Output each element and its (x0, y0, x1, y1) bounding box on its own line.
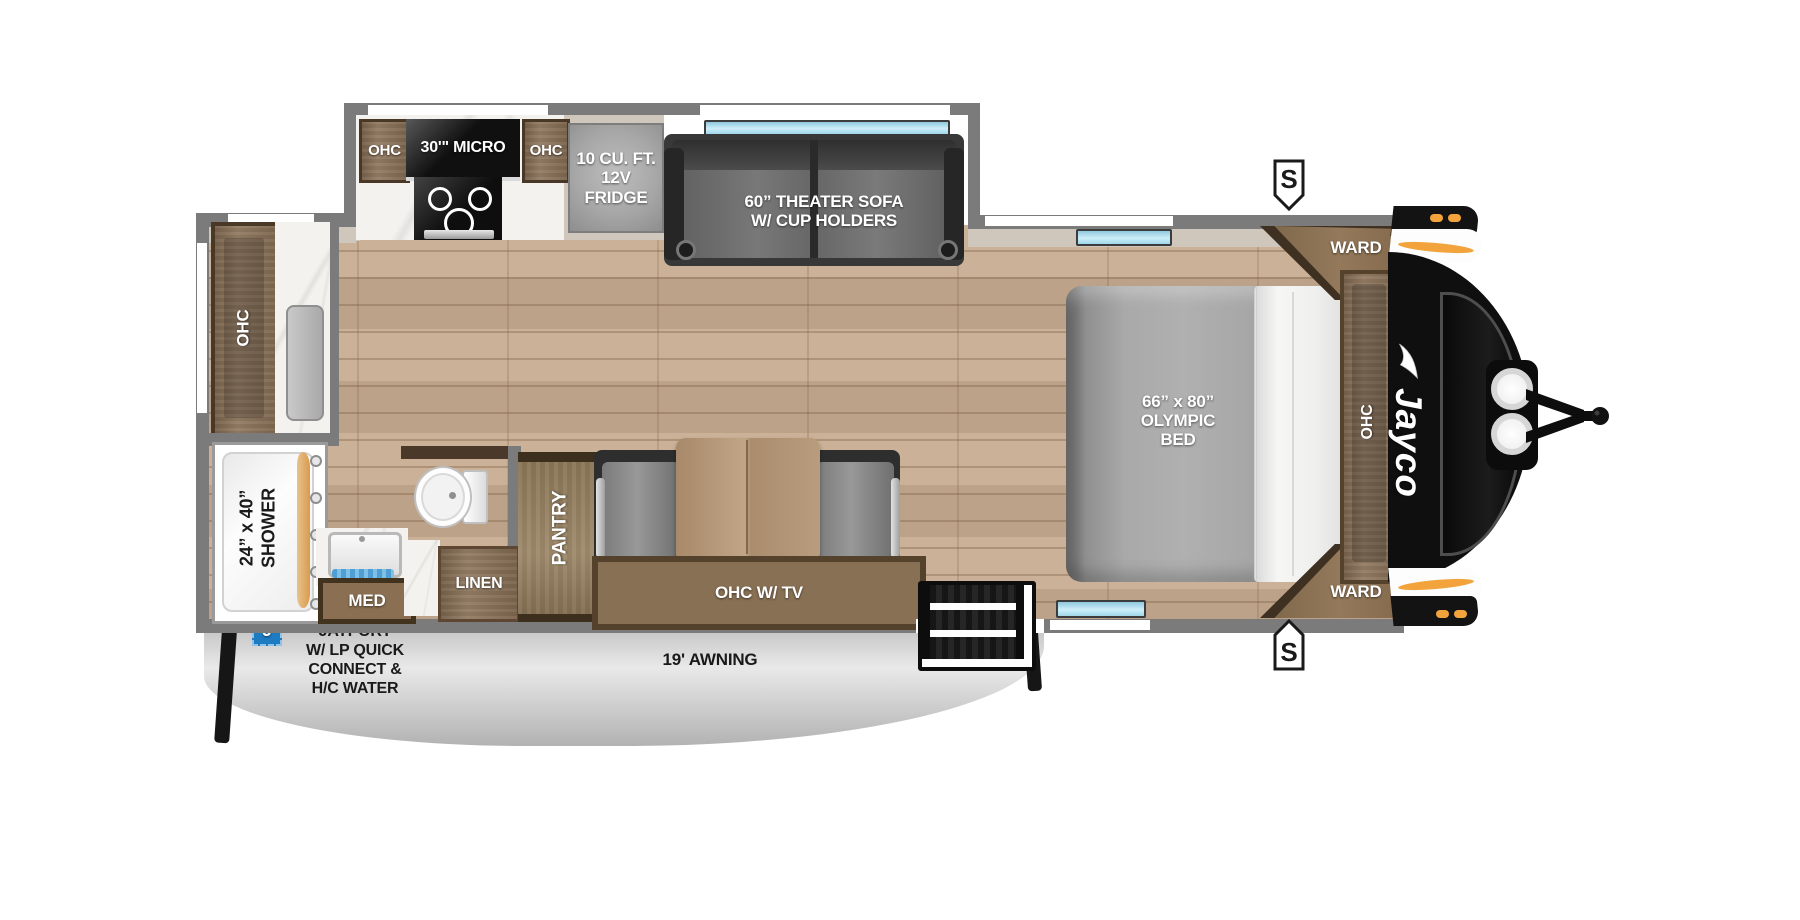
refrigerator: 10 CU. FT. 12V FRIDGE (568, 123, 664, 233)
cup-holder-icon (676, 240, 696, 260)
safety-marker-bottom-letter: S (1280, 637, 1297, 667)
shower-label: 24” x 40” SHOWER (236, 488, 279, 568)
rear-counter-inset (286, 305, 324, 421)
wardrobe-top-label: WARD (1312, 238, 1400, 257)
shower-curtain (297, 452, 310, 608)
burner-icon (468, 187, 492, 211)
bed-label: 66” x 80” OLYMPIC BED (1108, 392, 1248, 449)
window (197, 243, 207, 413)
slideout-wall-left (344, 103, 356, 227)
wall-rear-cabinet-edge (330, 222, 339, 433)
marker-light-icon (1454, 610, 1467, 618)
window (985, 216, 1173, 226)
dinette-armrest-right (891, 478, 900, 558)
tv-cabinet-label: OHC W/ TV (715, 583, 803, 602)
rear-overhead-cabinet-label: OHC (233, 309, 252, 346)
wardrobe-bottom-label: WARD (1312, 582, 1400, 601)
linen-closet: LINEN (438, 546, 520, 622)
bed-pillow-seam (1292, 292, 1294, 576)
hitch (1524, 386, 1614, 446)
faucet-icon (359, 536, 365, 542)
entry-step-rail-left (922, 585, 930, 659)
microwave-label: 30'" MICRO (421, 139, 506, 157)
safety-marker-bottom: S (1272, 618, 1306, 672)
refrigerator-label: 10 CU. FT. 12V FRIDGE (570, 149, 662, 206)
medicine-cabinet: MED (318, 578, 416, 624)
window (700, 105, 950, 115)
overhead-cabinet-right: OHC (522, 119, 570, 183)
window-sill (1056, 600, 1146, 618)
cup-holder-icon (938, 240, 958, 260)
medicine-cabinet-label: MED (348, 591, 385, 610)
linen-closet-label: LINEN (455, 575, 502, 593)
pantry-label: PANTRY (549, 491, 570, 566)
marker-light-icon (1436, 610, 1449, 618)
entry-step-tread (930, 637, 1016, 659)
dinette-table (676, 438, 820, 564)
window-sill (1076, 229, 1172, 246)
entry-step-tread (930, 585, 1016, 603)
dinette-armrest-left (596, 478, 605, 558)
bed-bedding (1254, 286, 1341, 582)
window (1050, 620, 1150, 630)
tv-cabinet: OHC W/ TV (592, 556, 926, 630)
window (368, 105, 548, 115)
safety-marker-top-letter: S (1280, 164, 1297, 194)
entry-step-tread (930, 610, 1016, 630)
slideout-wall-right (968, 103, 980, 223)
marker-light-icon (1430, 214, 1443, 222)
shower-roller-icon (310, 455, 322, 467)
jayco-logo-text: Jayco (1387, 388, 1428, 498)
safety-marker-top: S (1272, 158, 1306, 212)
theater-sofa-label: 60” THEATER SOFA W/ CUP HOLDERS (734, 192, 914, 230)
floorplan-canvas: 19' AWNING J JAYPORT W/ LP QUICK CONNECT… (0, 0, 1800, 920)
burner-icon (428, 187, 452, 211)
bedroom-overhead-cabinet-label: OHC (1359, 405, 1377, 440)
toilet-seat (421, 473, 465, 521)
overhead-cabinet-left: OHC (359, 119, 410, 183)
bath-counter-filler (404, 540, 440, 616)
toilet-half-wall (401, 446, 513, 459)
shower-roller-icon (310, 492, 322, 504)
dinette-table-seam (746, 440, 748, 554)
entry-step-rail-right (1016, 585, 1024, 659)
microwave: 30'" MICRO (406, 119, 520, 181)
toilet-flush-icon (449, 492, 456, 499)
jayco-logo: Jayco (1387, 310, 1429, 530)
jayco-bird-icon (1396, 342, 1420, 380)
awning-label: 19' AWNING (630, 650, 790, 669)
jayport-label: JAYPORT W/ LP QUICK CONNECT & H/C WATER (275, 622, 435, 698)
dinette-seat-right (816, 462, 894, 560)
oven-front (424, 230, 494, 239)
overhead-cabinet-right-label: OHC (530, 143, 563, 160)
sink-towel (332, 569, 394, 578)
dinette-seat-left (602, 462, 680, 560)
marker-light-icon (1448, 214, 1461, 222)
overhead-cabinet-left-label: OHC (368, 143, 401, 160)
